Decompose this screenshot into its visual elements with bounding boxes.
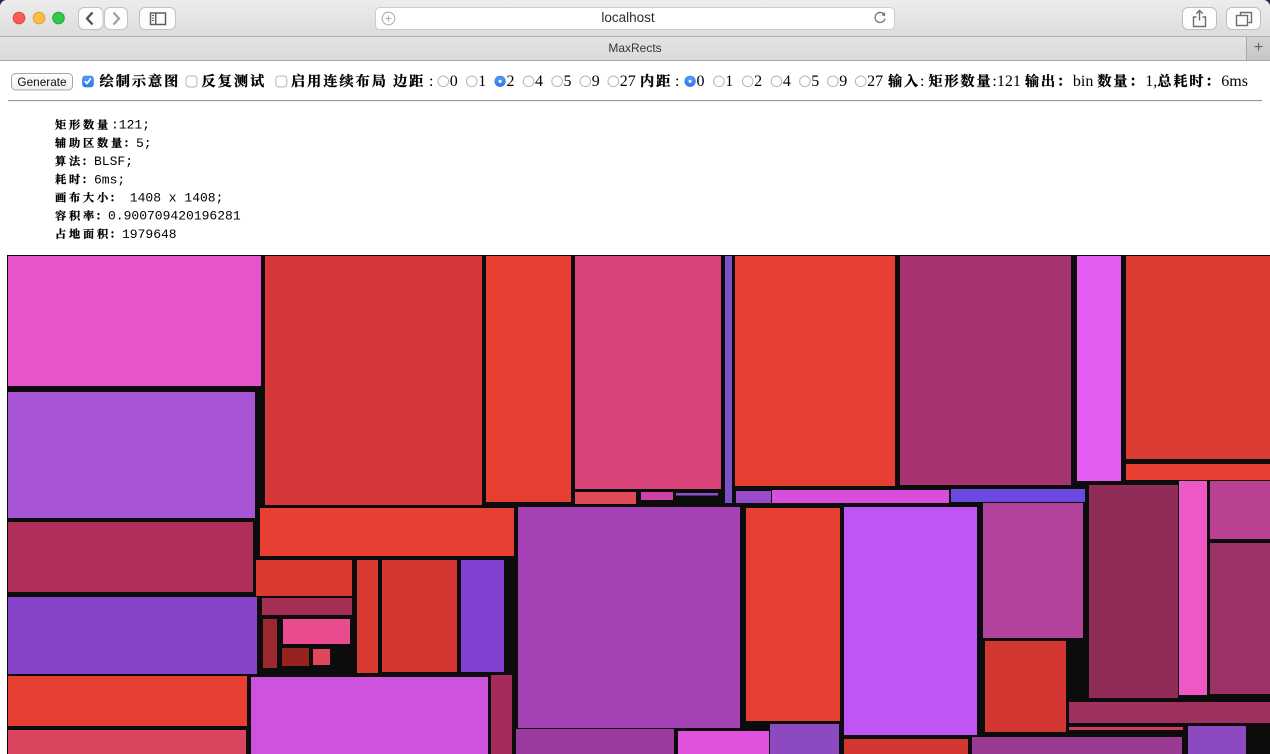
svg-text:2: 2: [507, 73, 515, 90]
svg-text:4: 4: [535, 73, 543, 90]
svg-text:5: 5: [811, 73, 819, 90]
svg-text:9: 9: [592, 73, 600, 90]
svg-text:6ms: 6ms: [1221, 73, 1248, 90]
svg-text:27: 27: [620, 73, 636, 90]
svg-text:9: 9: [839, 73, 847, 90]
svg-text:0: 0: [697, 73, 705, 90]
svg-text:5;: 5;: [136, 136, 152, 151]
svg-text::: :: [675, 73, 679, 90]
svg-text:27: 27: [867, 73, 883, 90]
svg-text::: :: [429, 73, 433, 90]
svg-text::: :: [920, 73, 928, 90]
svg-text::121: :121: [992, 73, 1024, 90]
svg-text:Generate: Generate: [17, 75, 67, 89]
svg-text:1: 1: [725, 73, 733, 90]
svg-text:0: 0: [450, 73, 458, 90]
svg-text:121;: 121;: [119, 118, 150, 133]
svg-text:2: 2: [754, 73, 762, 90]
svg-text::: :: [111, 118, 119, 133]
svg-text:0.900709420196281: 0.900709420196281: [108, 209, 241, 224]
svg-text:1408 x 1408;: 1408 x 1408;: [130, 191, 224, 206]
svg-text:BLSF;: BLSF;: [94, 154, 133, 169]
svg-text:bin: bin: [1073, 73, 1097, 90]
svg-text:5: 5: [564, 73, 572, 90]
svg-text:1979648: 1979648: [122, 227, 177, 242]
svg-text:4: 4: [783, 73, 791, 90]
svg-text:6ms;: 6ms;: [94, 172, 125, 187]
svg-text:1,: 1,: [1145, 73, 1157, 90]
svg-text:1: 1: [478, 73, 486, 90]
